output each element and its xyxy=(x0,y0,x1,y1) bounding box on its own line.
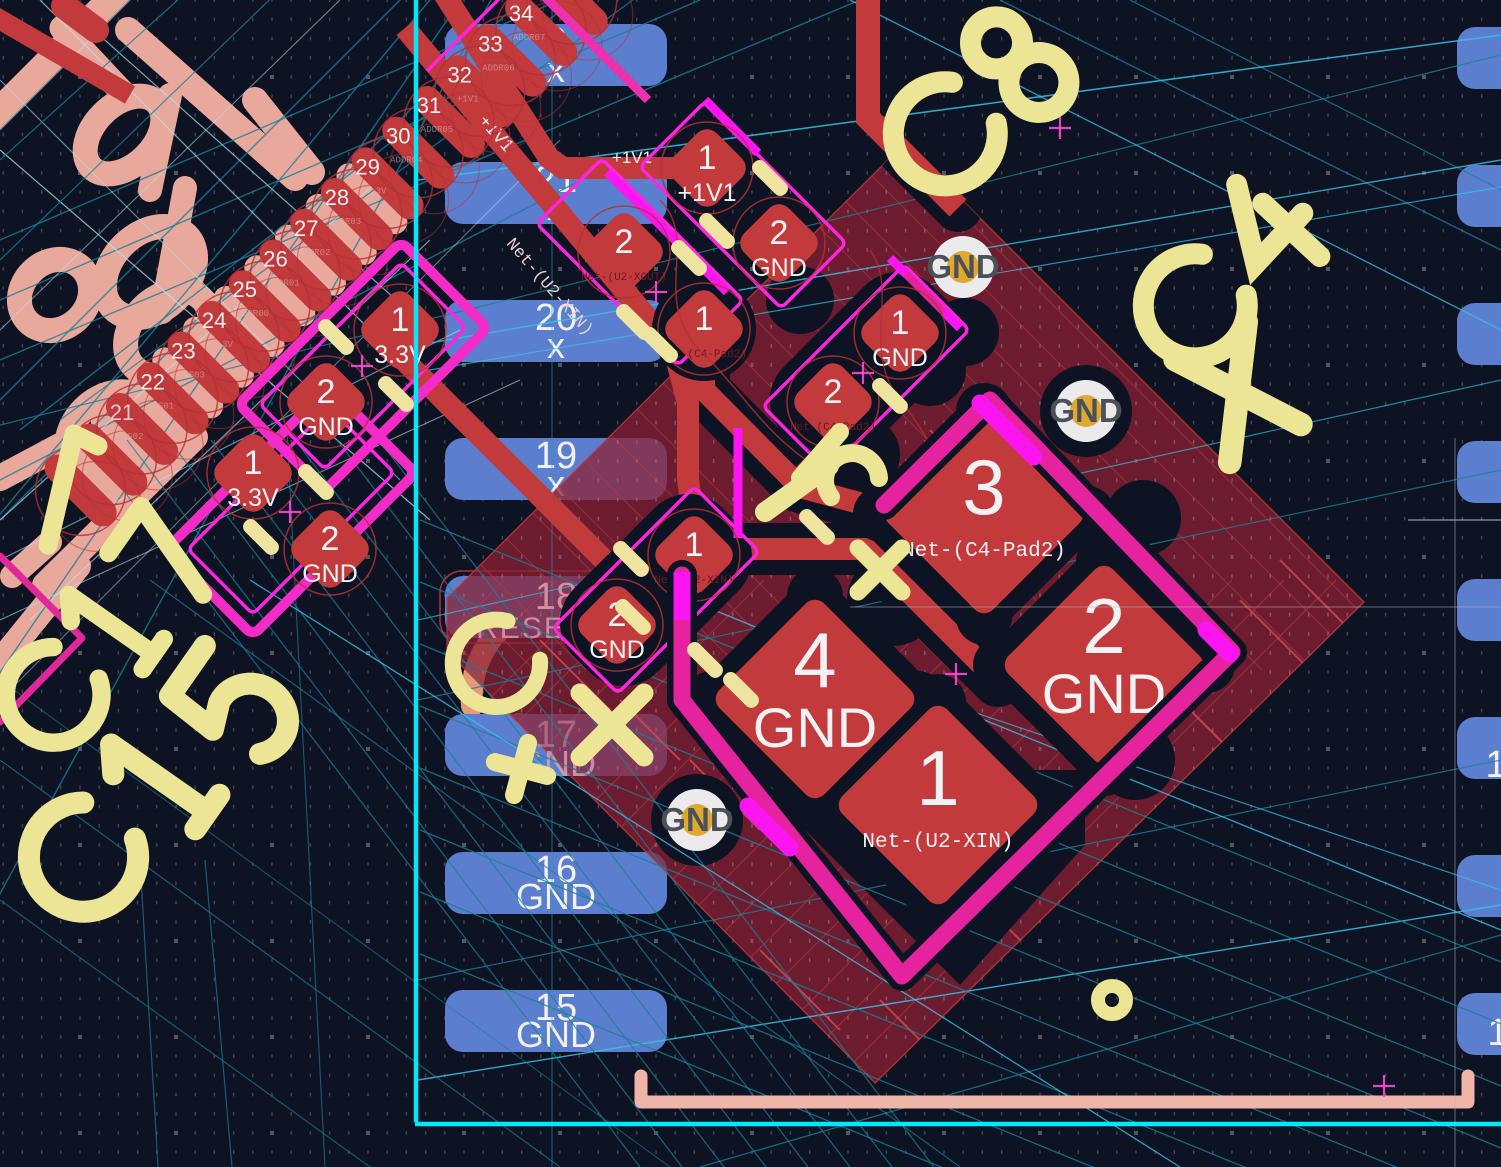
svg-text:Net-(U2-XIN): Net-(U2-XIN) xyxy=(862,831,1013,854)
svg-text:GND: GND xyxy=(298,413,354,441)
svg-text:1: 1 xyxy=(391,301,410,339)
svg-text:3.3V: 3.3V xyxy=(211,340,233,350)
svg-text:1: 1 xyxy=(685,526,704,564)
svg-text:3.3V: 3.3V xyxy=(227,484,279,512)
svg-text:2: 2 xyxy=(1082,582,1125,670)
svg-text:BUS01: BUS01 xyxy=(147,401,174,411)
svg-text:22: 22 xyxy=(140,369,164,394)
svg-text:26: 26 xyxy=(263,247,287,272)
svg-text:GND: GND xyxy=(753,696,877,759)
svg-text:2: 2 xyxy=(824,373,843,411)
svg-text:ADDR01: ADDR01 xyxy=(267,279,299,289)
svg-text:ADDR06: ADDR06 xyxy=(482,64,514,74)
svg-text:2: 2 xyxy=(317,373,336,411)
svg-text:27: 27 xyxy=(294,216,318,241)
svg-text:1: 1 xyxy=(698,139,717,177)
svg-text:Net-(U2-XOUT): Net-(U2-XOUT) xyxy=(581,272,667,284)
svg-text:ADDR02: ADDR02 xyxy=(298,248,330,258)
svg-text:1: 1 xyxy=(1485,744,1501,786)
svg-text:ADDR00: ADDR00 xyxy=(237,309,269,319)
svg-text:29: 29 xyxy=(355,154,379,179)
svg-text:ADDR05: ADDR05 xyxy=(421,125,453,135)
svg-text:21: 21 xyxy=(110,400,134,425)
svg-text:x: x xyxy=(547,325,565,366)
svg-text:28: 28 xyxy=(325,185,349,210)
svg-text:BUS02: BUS02 xyxy=(116,432,143,442)
svg-text:3.3V: 3.3V xyxy=(365,186,387,196)
svg-text:GND: GND xyxy=(660,801,733,838)
svg-text:2: 2 xyxy=(321,520,340,558)
svg-text:GND: GND xyxy=(589,636,645,664)
svg-text:Net-(C4-Pad2): Net-(C4-Pad2) xyxy=(902,540,1066,563)
svg-text:1: 1 xyxy=(244,444,263,482)
svg-text:GND: GND xyxy=(751,254,807,282)
svg-text:+1V1: +1V1 xyxy=(457,94,479,104)
svg-text:2: 2 xyxy=(770,214,789,252)
svg-text:1: 1 xyxy=(695,300,714,338)
svg-text:GND: GND xyxy=(926,248,999,285)
svg-text:3.3V: 3.3V xyxy=(374,341,426,369)
svg-text:+1V1: +1V1 xyxy=(677,179,736,207)
svg-text:+1V1: +1V1 xyxy=(612,148,652,167)
svg-text:3: 3 xyxy=(962,443,1005,531)
svg-text:1: 1 xyxy=(1487,1012,1501,1054)
svg-text:1: 1 xyxy=(891,304,910,342)
svg-text:34: 34 xyxy=(509,1,533,26)
svg-text:32: 32 xyxy=(447,62,471,87)
svg-text:4: 4 xyxy=(793,616,836,704)
svg-text:GND: GND xyxy=(302,560,358,588)
svg-text:BUS03: BUS03 xyxy=(178,371,205,381)
svg-text:ADDR07: ADDR07 xyxy=(513,33,545,43)
svg-text:23: 23 xyxy=(171,339,195,364)
svg-text:31: 31 xyxy=(417,93,441,118)
svg-text:GND: GND xyxy=(1049,392,1122,429)
svg-text:1: 1 xyxy=(916,734,959,822)
svg-text:25: 25 xyxy=(233,277,257,302)
svg-text:33: 33 xyxy=(478,32,502,57)
svg-text:2: 2 xyxy=(615,223,634,261)
svg-text:30: 30 xyxy=(386,124,410,149)
svg-text:ADDR03: ADDR03 xyxy=(329,217,361,227)
svg-text:24: 24 xyxy=(202,308,226,333)
